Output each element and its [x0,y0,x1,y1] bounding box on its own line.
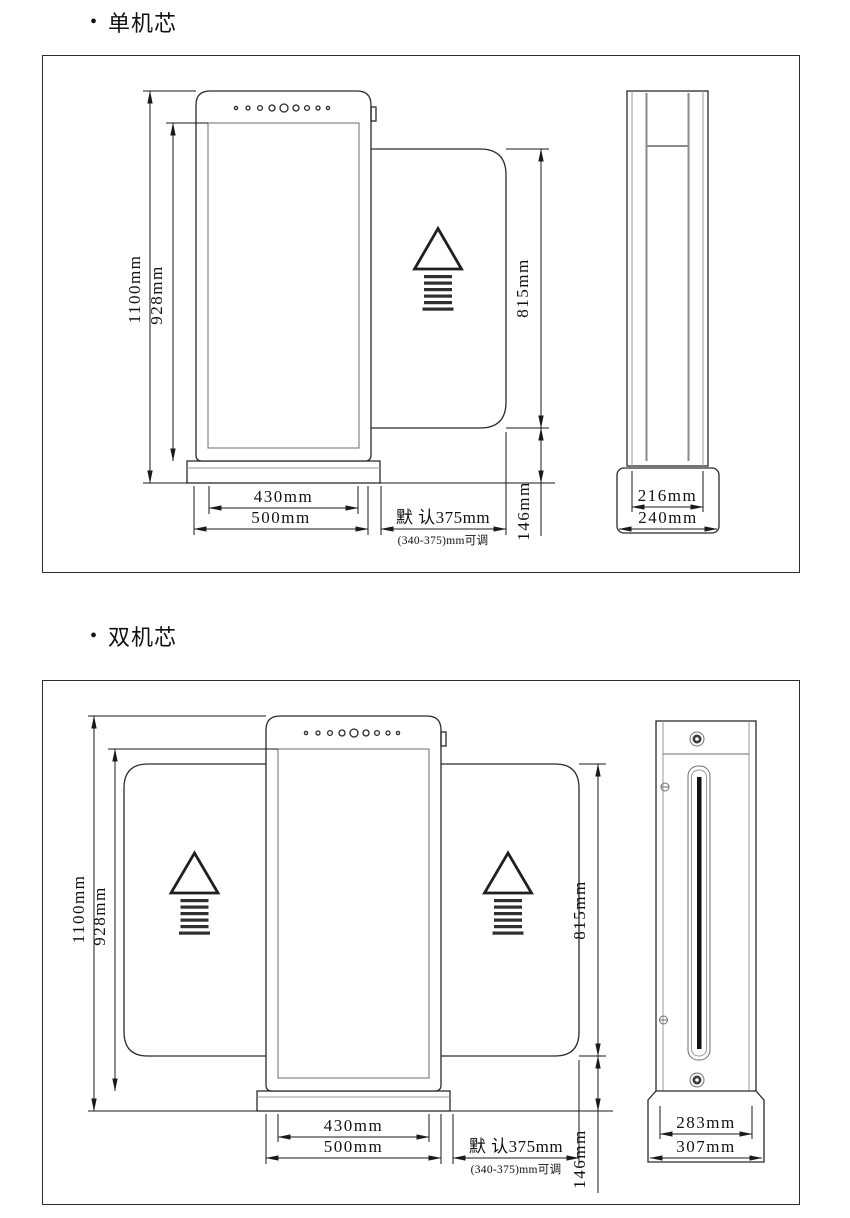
page: { "page": { "background": "#ffffff", "li… [0,0,850,1218]
dim-label-flap-range: (340-375)mm可调 [398,534,489,547]
bullet-icon: • [90,626,98,646]
dim-label-depth-outer: 240mm [638,508,697,527]
side-tab [371,107,376,121]
dim-label-depth-outer: 307mm [676,1137,735,1156]
front-view-cabinet [266,716,446,1091]
base-outline [187,461,380,483]
dim-flap-length: 默 认375mm (340-375)mm可调 [381,432,506,547]
front-view-cabinet [196,91,376,461]
dim-label-body-height: 928mm [90,886,109,945]
dual-core-diagram: 1100mm 928mm 430mm 500mm 默 认375mm (340-3… [43,681,799,1204]
section-title-text: 双机芯 [108,620,177,652]
arrow-bar [494,925,522,928]
dual-core-drawing-frame: 1100mm 928mm 430mm 500mm 默 认375mm (340-3… [42,680,800,1205]
right-flap-panel [433,764,579,1056]
dim-label-flap-default: 默 认375mm [396,508,490,527]
arrow-bar [424,295,452,298]
side-tab [441,732,446,746]
side-view [648,721,764,1162]
arrow-bar [494,899,522,902]
side-column-outline [627,91,708,466]
arrow-bar [424,282,452,285]
arrow-bar [181,925,209,928]
section-title-dual-core: • 双机芯 [90,620,177,652]
arrow-bar [423,308,454,311]
arrow-bar [181,919,209,922]
arrow-bar [179,932,210,935]
arrow-bar [181,912,209,915]
arrow-bar [494,912,522,915]
single-core-drawing-frame: 1100mm 928mm 430mm 500mm 默 认375mm (340-3… [42,55,800,573]
cabinet-base [257,1091,450,1111]
dim-label-flap-default: 默 认375mm [469,1137,563,1156]
dim-label-depth-inner: 216mm [638,486,697,505]
arrow-bar [494,919,522,922]
right-flap-outline [433,764,579,1056]
arrow-bar [493,932,524,935]
left-flap-outline [124,764,273,1056]
cabinet-outline [266,716,441,1091]
dim-flap-height: 815mm [506,149,549,428]
dim-label-depth-inner: 283mm [676,1113,735,1132]
dim-label-outer-width: 500mm [324,1137,383,1156]
arrow-bar [181,899,209,902]
dim-label-flap-height: 815mm [570,880,589,939]
section-title-text: 单机芯 [108,6,177,38]
dim-label-bottom-gap: 146mm [514,481,533,540]
dim-label-outer-width: 500mm [251,508,310,527]
single-core-diagram: 1100mm 928mm 430mm 500mm 默 认375mm (340-3… [43,56,799,572]
arrow-bar [181,906,209,909]
dim-label-total-height: 1100mm [69,875,88,944]
center-slot [688,766,710,1060]
cabinet-base [187,461,380,483]
dim-label-flap-range: (340-375)mm可调 [471,1163,562,1176]
dim-label-total-height: 1100mm [125,255,144,324]
arrow-bar [494,906,522,909]
dim-label-bottom-gap: 146mm [570,1129,589,1188]
dim-label-flap-height: 815mm [513,258,532,317]
dim-flap-length: 默 认375mm (340-375)mm可调 [453,1060,579,1176]
dim-label-inner-width: 430mm [324,1116,383,1135]
cabinet-outline [196,91,371,461]
base-outline [257,1091,450,1111]
dim-label-body-height: 928mm [147,265,166,324]
arrow-bar [424,301,452,304]
arrow-bar [424,275,452,278]
left-flap-panel [124,764,273,1056]
section-title-single-core: • 单机芯 [90,6,177,38]
arrow-bar [424,288,452,291]
dim-label-inner-width: 430mm [254,487,313,506]
side-view [617,91,719,533]
bullet-icon: • [90,12,98,32]
